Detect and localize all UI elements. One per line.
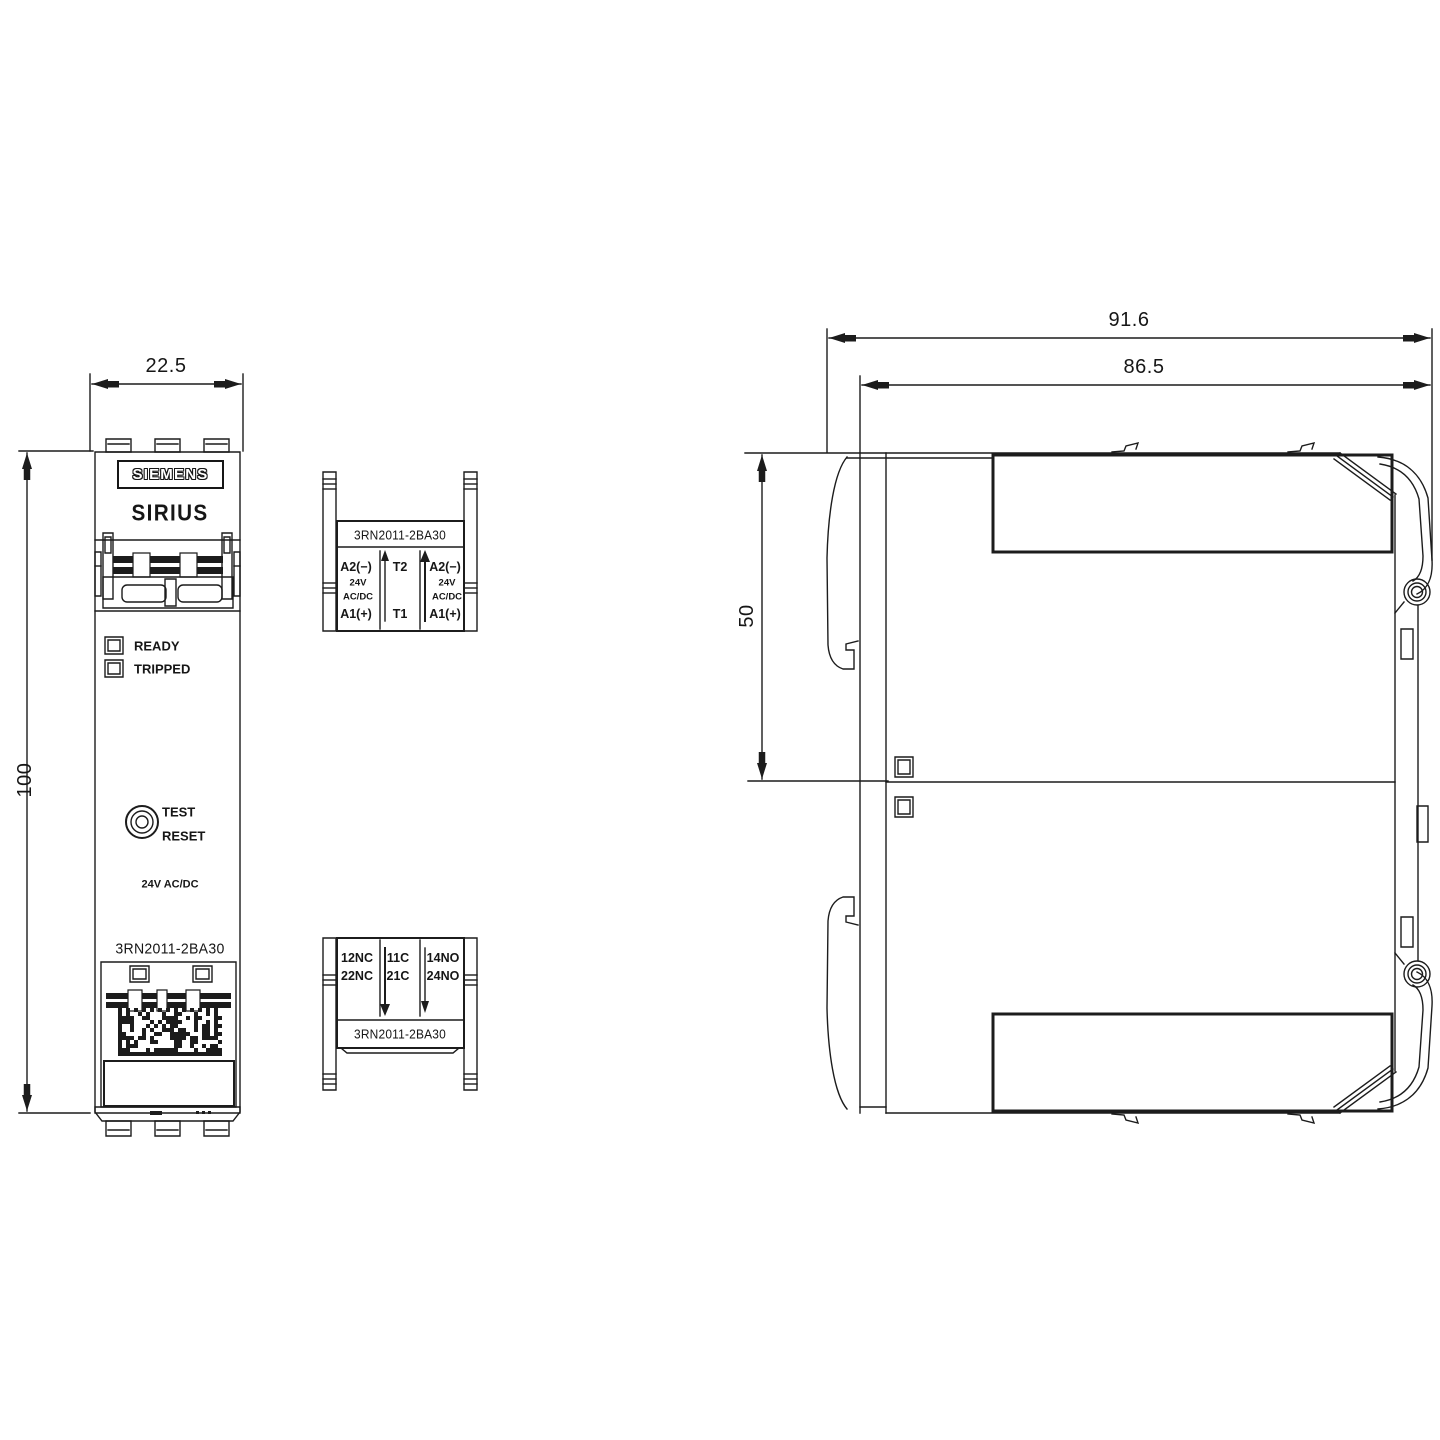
front-top-tabs <box>106 439 229 452</box>
upper-block-part-number: 3RN2011-2BA30 <box>354 529 446 542</box>
siemens-logo: SIEMENS <box>117 460 224 489</box>
upper-right-r4: A1(+) <box>429 608 461 621</box>
test-reset-button <box>126 806 158 838</box>
tripped-led-square <box>105 660 123 677</box>
lower-middle-r2: 21C <box>387 970 410 983</box>
side-right-face <box>1395 495 1428 1071</box>
dim-upper-height-50 <box>748 455 888 781</box>
lower-right-r2: 24NO <box>427 970 460 983</box>
side-top-recess <box>993 455 1392 552</box>
tripped-led-label: TRIPPED <box>134 663 190 676</box>
upper-right-r2: 24V <box>439 578 456 588</box>
front-outline <box>95 452 240 1113</box>
upper-right-r1: A2(−) <box>429 561 461 574</box>
lower-middle-r1: 11C <box>387 952 409 965</box>
side-bottom-latch <box>1378 953 1432 1109</box>
upper-middle-r1: T2 <box>393 561 408 574</box>
drawing-linework <box>0 0 1440 1440</box>
side-edge-hooks <box>1112 443 1314 1123</box>
side-lower-flap <box>827 897 858 1109</box>
lower-right-r1: 14NO <box>427 952 460 965</box>
side-top-latch <box>1378 457 1432 613</box>
dim-label-upper-height: 50 <box>737 604 757 627</box>
upper-left-r1: A2(−) <box>340 561 372 574</box>
front-upper-latch <box>95 533 240 611</box>
dim-label-width: 22.5 <box>146 356 187 376</box>
siemens-logo-text: SIEMENS <box>133 466 209 483</box>
voltage-label: 24V AC/DC <box>141 880 198 891</box>
front-part-number: 3RN2011-2BA30 <box>115 942 224 957</box>
side-indicator-squares <box>895 757 913 817</box>
lower-block-part-number: 3RN2011-2BA30 <box>354 1028 446 1041</box>
test-label: TEST <box>162 806 195 819</box>
dim-label-overall-width: 91.6 <box>1109 310 1150 330</box>
side-upper-flap <box>827 457 858 669</box>
datamatrix-code <box>118 1008 222 1056</box>
front-lower-terminal <box>95 962 240 1121</box>
ready-led-label: READY <box>134 640 180 653</box>
series-label: SIRIUS <box>131 502 208 525</box>
upper-left-r2: 24V <box>350 578 367 588</box>
upper-left-r3: AC/DC <box>343 592 373 602</box>
lower-left-r1: 12NC <box>341 952 373 965</box>
side-view <box>745 329 1432 1123</box>
dim-label-body-width: 86.5 <box>1124 357 1165 377</box>
front-bottom-tabs <box>106 1121 229 1136</box>
label-field <box>104 1061 234 1106</box>
ready-led-square <box>105 637 123 654</box>
lower-left-r2: 22NC <box>341 970 373 983</box>
dim-body-width-86-5 <box>860 376 1430 452</box>
up-arrow-left <box>381 550 389 621</box>
upper-middle-r4: T1 <box>393 608 408 621</box>
reset-label: RESET <box>162 830 205 843</box>
side-bottom-recess <box>993 1014 1392 1111</box>
dim-label-height: 100 <box>15 763 35 798</box>
upper-left-r4: A1(+) <box>340 608 372 621</box>
dimensional-drawing: 22.5 100 91.6 86.5 50 SIEMENS SIRIUS REA… <box>0 0 1440 1440</box>
upper-right-r3: AC/DC <box>432 592 462 602</box>
